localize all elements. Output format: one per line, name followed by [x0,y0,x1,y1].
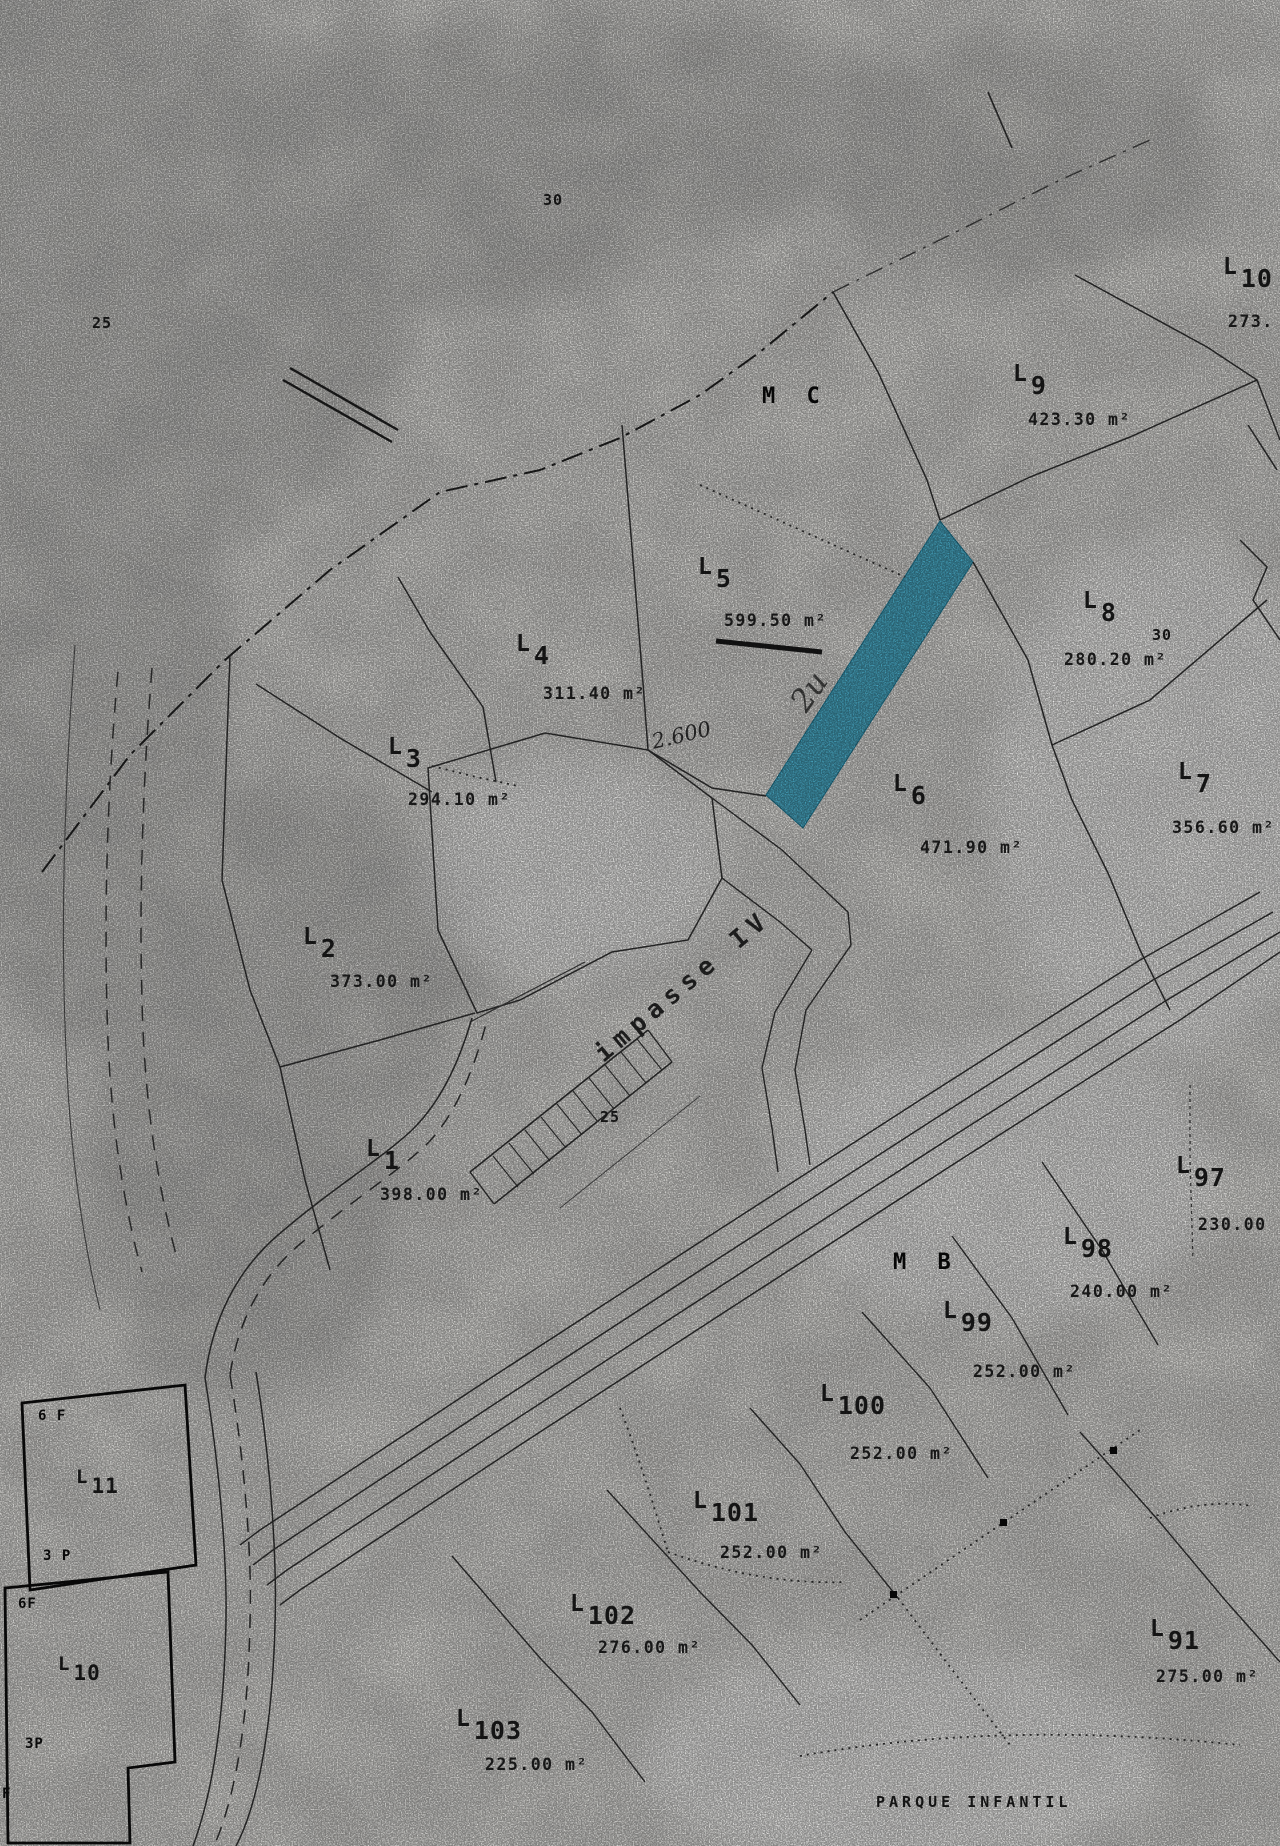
lot-area-l97: 230.00 [1198,1215,1267,1234]
park-label: PARQUE INFANTIL [876,1793,1071,1811]
region-label-mc: M C [762,384,829,409]
elevation-mark-top: 30 [543,191,563,209]
lot-area-l1: 398.00 m² [380,1185,483,1204]
lot-label-l5: L5 [698,556,732,591]
lot-label-l100: L100 [820,1383,886,1418]
lot-area-l9: 423.30 m² [1028,410,1131,429]
house-partial-label: F [2,1786,11,1802]
lot-area-l3: 294.10 m² [408,790,511,809]
lot-label-l103: L103 [456,1708,522,1743]
scanned-cadastral-map: M C M B 30 25 25 30 impasse IV PARQUE IN… [0,0,1280,1846]
elevation-mark-l8: 30 [1152,626,1172,644]
lot-label-l97: L97 [1176,1155,1226,1190]
house-label-l11: L11 [76,1468,119,1497]
lot-label-l1: L1 [366,1138,400,1173]
house-label-l10: L10 [58,1655,101,1684]
house-floors-l10: 6F [18,1596,37,1612]
lot-label-l10-parcel: L10 [1223,256,1273,291]
map-linework [0,0,1280,1846]
elevation-mark-street: 25 [600,1108,620,1126]
lot-label-l8: L8 [1083,590,1117,625]
lot-area-l4: 311.40 m² [543,684,646,703]
lot-area-l99: 252.00 m² [973,1362,1076,1381]
lot-area-l91: 275.00 m² [1156,1667,1259,1686]
lot-area-l100: 252.00 m² [850,1444,953,1463]
lot-label-l3: L3 [388,736,422,771]
lot-label-l6: L6 [893,773,927,808]
lot-area-l103: 225.00 m² [485,1755,588,1774]
lot-label-l2: L2 [303,926,337,961]
lot-area-l101: 252.00 m² [720,1543,823,1562]
lot-area-l6: 471.90 m² [920,838,1023,857]
lot-area-l7: 356.60 m² [1172,818,1275,837]
lot-label-l4: L4 [516,633,550,668]
house-base-l10: 3P [25,1736,44,1752]
house-floors-l11: 6 F [38,1408,66,1424]
lot-label-l102: L102 [570,1593,636,1628]
lot-area-l98: 240.00 m² [1070,1282,1173,1301]
lot-area-l10-parcel: 273. [1228,312,1274,331]
lot-label-l7: L7 [1178,761,1212,796]
lot-label-l99: L99 [943,1300,993,1335]
lot-area-l8: 280.20 m² [1064,650,1167,669]
lot-area-l102: 276.00 m² [598,1638,701,1657]
lot-area-l5: 599.50 m² [724,611,827,630]
lot-area-l2: 373.00 m² [330,972,433,991]
house-base-l11: 3 P [43,1548,71,1564]
region-label-mb: M B [893,1250,960,1275]
lot-label-l91: L91 [1150,1618,1200,1653]
lot-label-l9: L9 [1013,363,1047,398]
lot-label-l101: L101 [693,1490,759,1525]
lot-label-l98: L98 [1063,1226,1113,1261]
elevation-mark-left: 25 [92,314,112,332]
